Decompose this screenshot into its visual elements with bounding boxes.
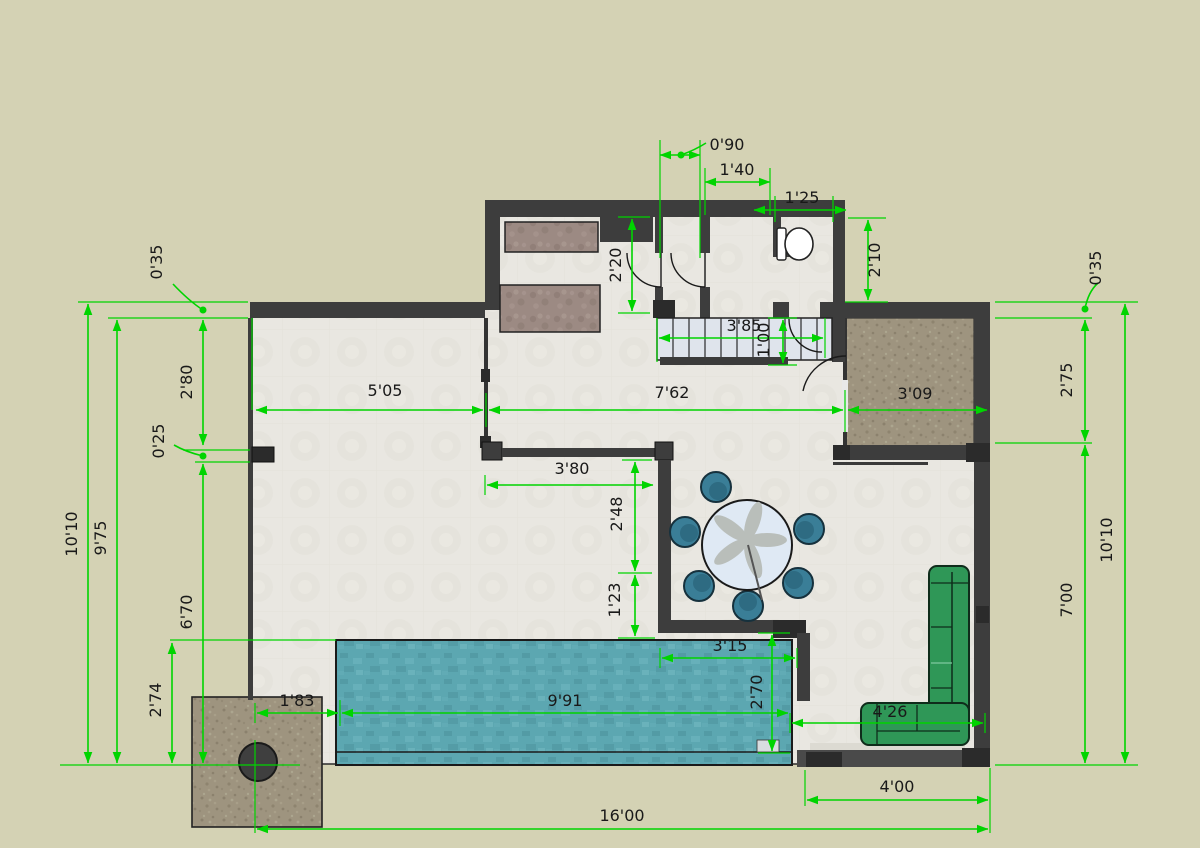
dimension-label: 3'09: [898, 384, 933, 403]
dimension-label: 4'00: [880, 777, 915, 796]
dimension-label: 6'70: [177, 595, 196, 630]
dimension-label: 2'74: [146, 683, 165, 718]
dimension-label: 3'15: [713, 636, 748, 655]
patio: [192, 697, 322, 827]
bottom-wall-pier-1: [806, 752, 842, 767]
bathroom: [777, 228, 813, 260]
dimension-label: 2'48: [607, 497, 626, 532]
toilet-icon: [785, 228, 813, 260]
right-wall: [974, 302, 990, 765]
dimension-label: 7'00: [1057, 583, 1076, 618]
dimension-label: 16'00: [599, 806, 644, 825]
dimension-label: 1'40: [720, 160, 755, 179]
dimension-label: 0'35: [1086, 251, 1105, 286]
dimension-label: 2'20: [606, 248, 625, 283]
bottom-wall-pier-2: [962, 748, 990, 767]
upper-right-wall: [833, 200, 845, 318]
upper-left-wall: [485, 200, 500, 310]
dimension-label: 5'05: [368, 381, 403, 400]
dimension-label: 0'90: [710, 135, 745, 154]
main-top-wall-right: [845, 302, 990, 318]
main-top-wall-left: [250, 302, 485, 318]
dining-wall-pier-right: [655, 442, 673, 460]
dimension-label: 0'35: [147, 245, 166, 280]
dimension-label: 10'10: [62, 511, 81, 556]
bath-wall-bottom-left: [773, 302, 789, 318]
kitchen-tall-unit: [600, 217, 653, 242]
hall-wall-1: [655, 217, 663, 253]
floor-plan-canvas: 0'90 1'40 1'25 2'20 2'10 0'35 2'80 0'25 …: [0, 0, 1200, 848]
kitchen-island: [500, 285, 600, 332]
dimension-label: 9'91: [548, 691, 583, 710]
dimension-label: 10'10: [1097, 517, 1116, 562]
terrace-pier-left: [833, 445, 850, 460]
dimension-label: 4'26: [873, 702, 908, 721]
right-wall-pier-2: [976, 606, 989, 623]
dimension-label: 1'00: [754, 323, 773, 358]
hall-wall-2: [700, 217, 710, 253]
dimension-label: 2'75: [1057, 363, 1076, 398]
patio-column-icon: [239, 743, 277, 781]
pool-step: [757, 740, 779, 752]
pillar-hall: [653, 300, 675, 318]
dimension-label: 1'83: [280, 691, 315, 710]
hall-wall-2b: [700, 287, 710, 318]
terrace-sill-line: [833, 462, 928, 465]
terrace-pier-right: [966, 443, 990, 462]
partition-mullion-1: [481, 369, 490, 382]
dining-wall-vertical: [658, 460, 671, 632]
kitchen-counter-top: [505, 222, 598, 252]
bath-wall-bottom-right: [820, 302, 845, 318]
dimension-label: 1'25: [785, 188, 820, 207]
dimension-label: 2'10: [865, 243, 884, 278]
dining-wall-horizontal: [502, 448, 658, 457]
dimension-label: 2'70: [747, 675, 766, 710]
dining-wall-pier-left: [482, 442, 502, 460]
dimension-label: 3'80: [555, 459, 590, 478]
dimension-label: 9'75: [91, 521, 110, 556]
floor-plan-drawing: 0'90 1'40 1'25 2'20 2'10 0'35 2'80 0'25 …: [0, 0, 1200, 848]
dimension-label: 7'62: [655, 383, 690, 402]
pool-right-wall: [797, 633, 810, 701]
terrace-room-floor: [845, 318, 974, 447]
dimension-label: 1'23: [605, 583, 624, 618]
dimension-label: 2'80: [177, 365, 196, 400]
left-pier-block: [252, 447, 274, 462]
dimension-label: 0'25: [149, 424, 168, 459]
